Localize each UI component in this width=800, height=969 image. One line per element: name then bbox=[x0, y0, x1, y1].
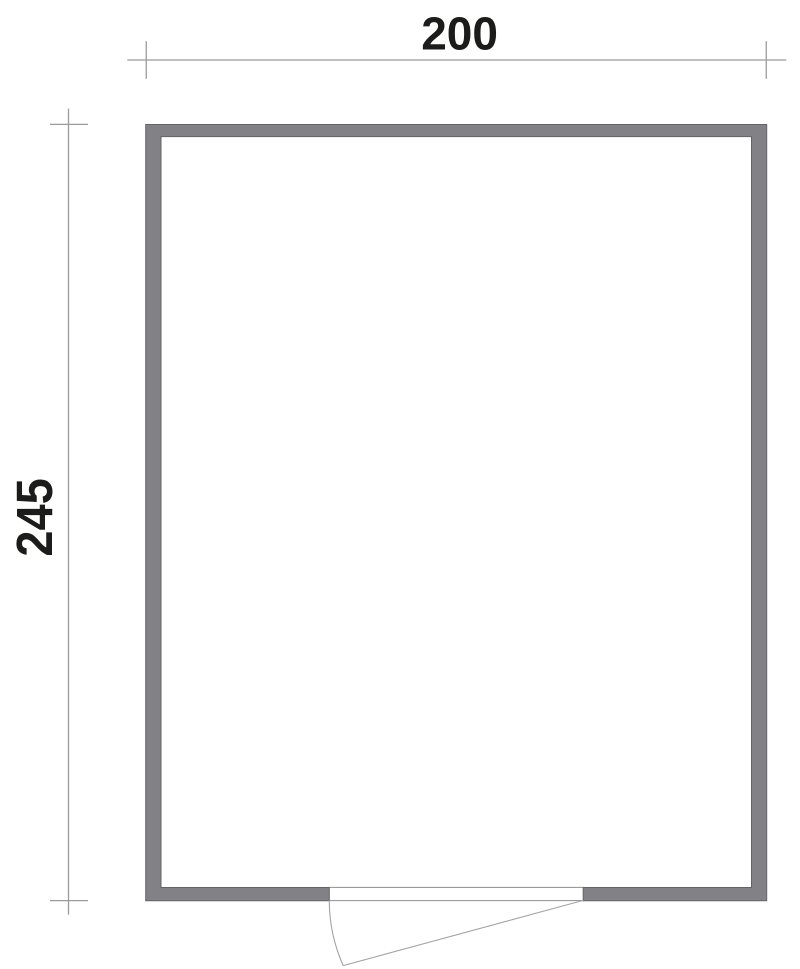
svg-text:200: 200 bbox=[421, 7, 498, 59]
svg-text:245: 245 bbox=[7, 478, 63, 556]
